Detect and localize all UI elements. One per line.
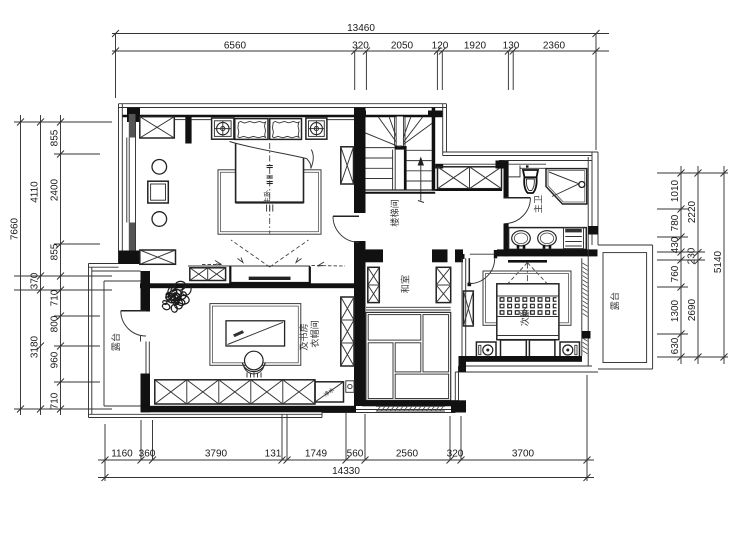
svg-text:320: 320 <box>447 449 464 460</box>
svg-text:6560: 6560 <box>224 41 247 52</box>
svg-text:主卧: 主卧 <box>263 190 272 204</box>
svg-text:14330: 14330 <box>332 466 360 477</box>
svg-text:2690: 2690 <box>687 298 698 321</box>
svg-text:1749: 1749 <box>305 449 328 460</box>
svg-text:560: 560 <box>347 449 364 460</box>
svg-text:3180: 3180 <box>30 335 41 358</box>
svg-text:630: 630 <box>670 337 681 354</box>
svg-text:露台: 露台 <box>110 333 121 351</box>
svg-text:760: 760 <box>670 265 681 282</box>
svg-text:13460: 13460 <box>347 23 375 34</box>
svg-text:780: 780 <box>670 214 681 231</box>
svg-text:1920: 1920 <box>464 41 487 52</box>
svg-text:3790: 3790 <box>205 449 228 460</box>
svg-text:855: 855 <box>50 243 61 260</box>
svg-text:360: 360 <box>139 449 156 460</box>
svg-text:及书房: 及书房 <box>298 323 309 351</box>
svg-text:次卧: 次卧 <box>519 308 530 326</box>
svg-text:855: 855 <box>50 129 61 146</box>
svg-text:120: 120 <box>432 41 449 52</box>
svg-text:1160: 1160 <box>111 449 133 460</box>
svg-text:960: 960 <box>50 351 61 368</box>
svg-text:710: 710 <box>50 392 61 409</box>
svg-text:3700: 3700 <box>512 449 535 460</box>
svg-text:131: 131 <box>265 449 282 460</box>
svg-text:230: 230 <box>687 247 698 264</box>
svg-text:800: 800 <box>50 315 61 332</box>
svg-text:7660: 7660 <box>10 217 21 240</box>
svg-text:露台: 露台 <box>609 292 620 310</box>
svg-text:1300: 1300 <box>670 299 681 322</box>
svg-text:2360: 2360 <box>543 41 566 52</box>
svg-text:2560: 2560 <box>396 449 419 460</box>
svg-text:5140: 5140 <box>713 250 724 273</box>
svg-text:2220: 2220 <box>687 200 698 223</box>
svg-text:1010: 1010 <box>670 179 681 202</box>
svg-text:2050: 2050 <box>391 41 414 52</box>
svg-text:和室: 和室 <box>400 275 411 293</box>
svg-text:370: 370 <box>30 272 41 289</box>
svg-text:430: 430 <box>670 236 681 253</box>
svg-text:130: 130 <box>503 41 520 52</box>
svg-text:衣帽间: 衣帽间 <box>309 320 320 348</box>
svg-text:主卫: 主卫 <box>533 195 544 213</box>
svg-text:320: 320 <box>352 41 369 52</box>
svg-text:2400: 2400 <box>50 178 61 201</box>
svg-text:楼梯间: 楼梯间 <box>389 199 400 227</box>
svg-text:710: 710 <box>50 289 61 306</box>
svg-text:4110: 4110 <box>30 181 41 203</box>
